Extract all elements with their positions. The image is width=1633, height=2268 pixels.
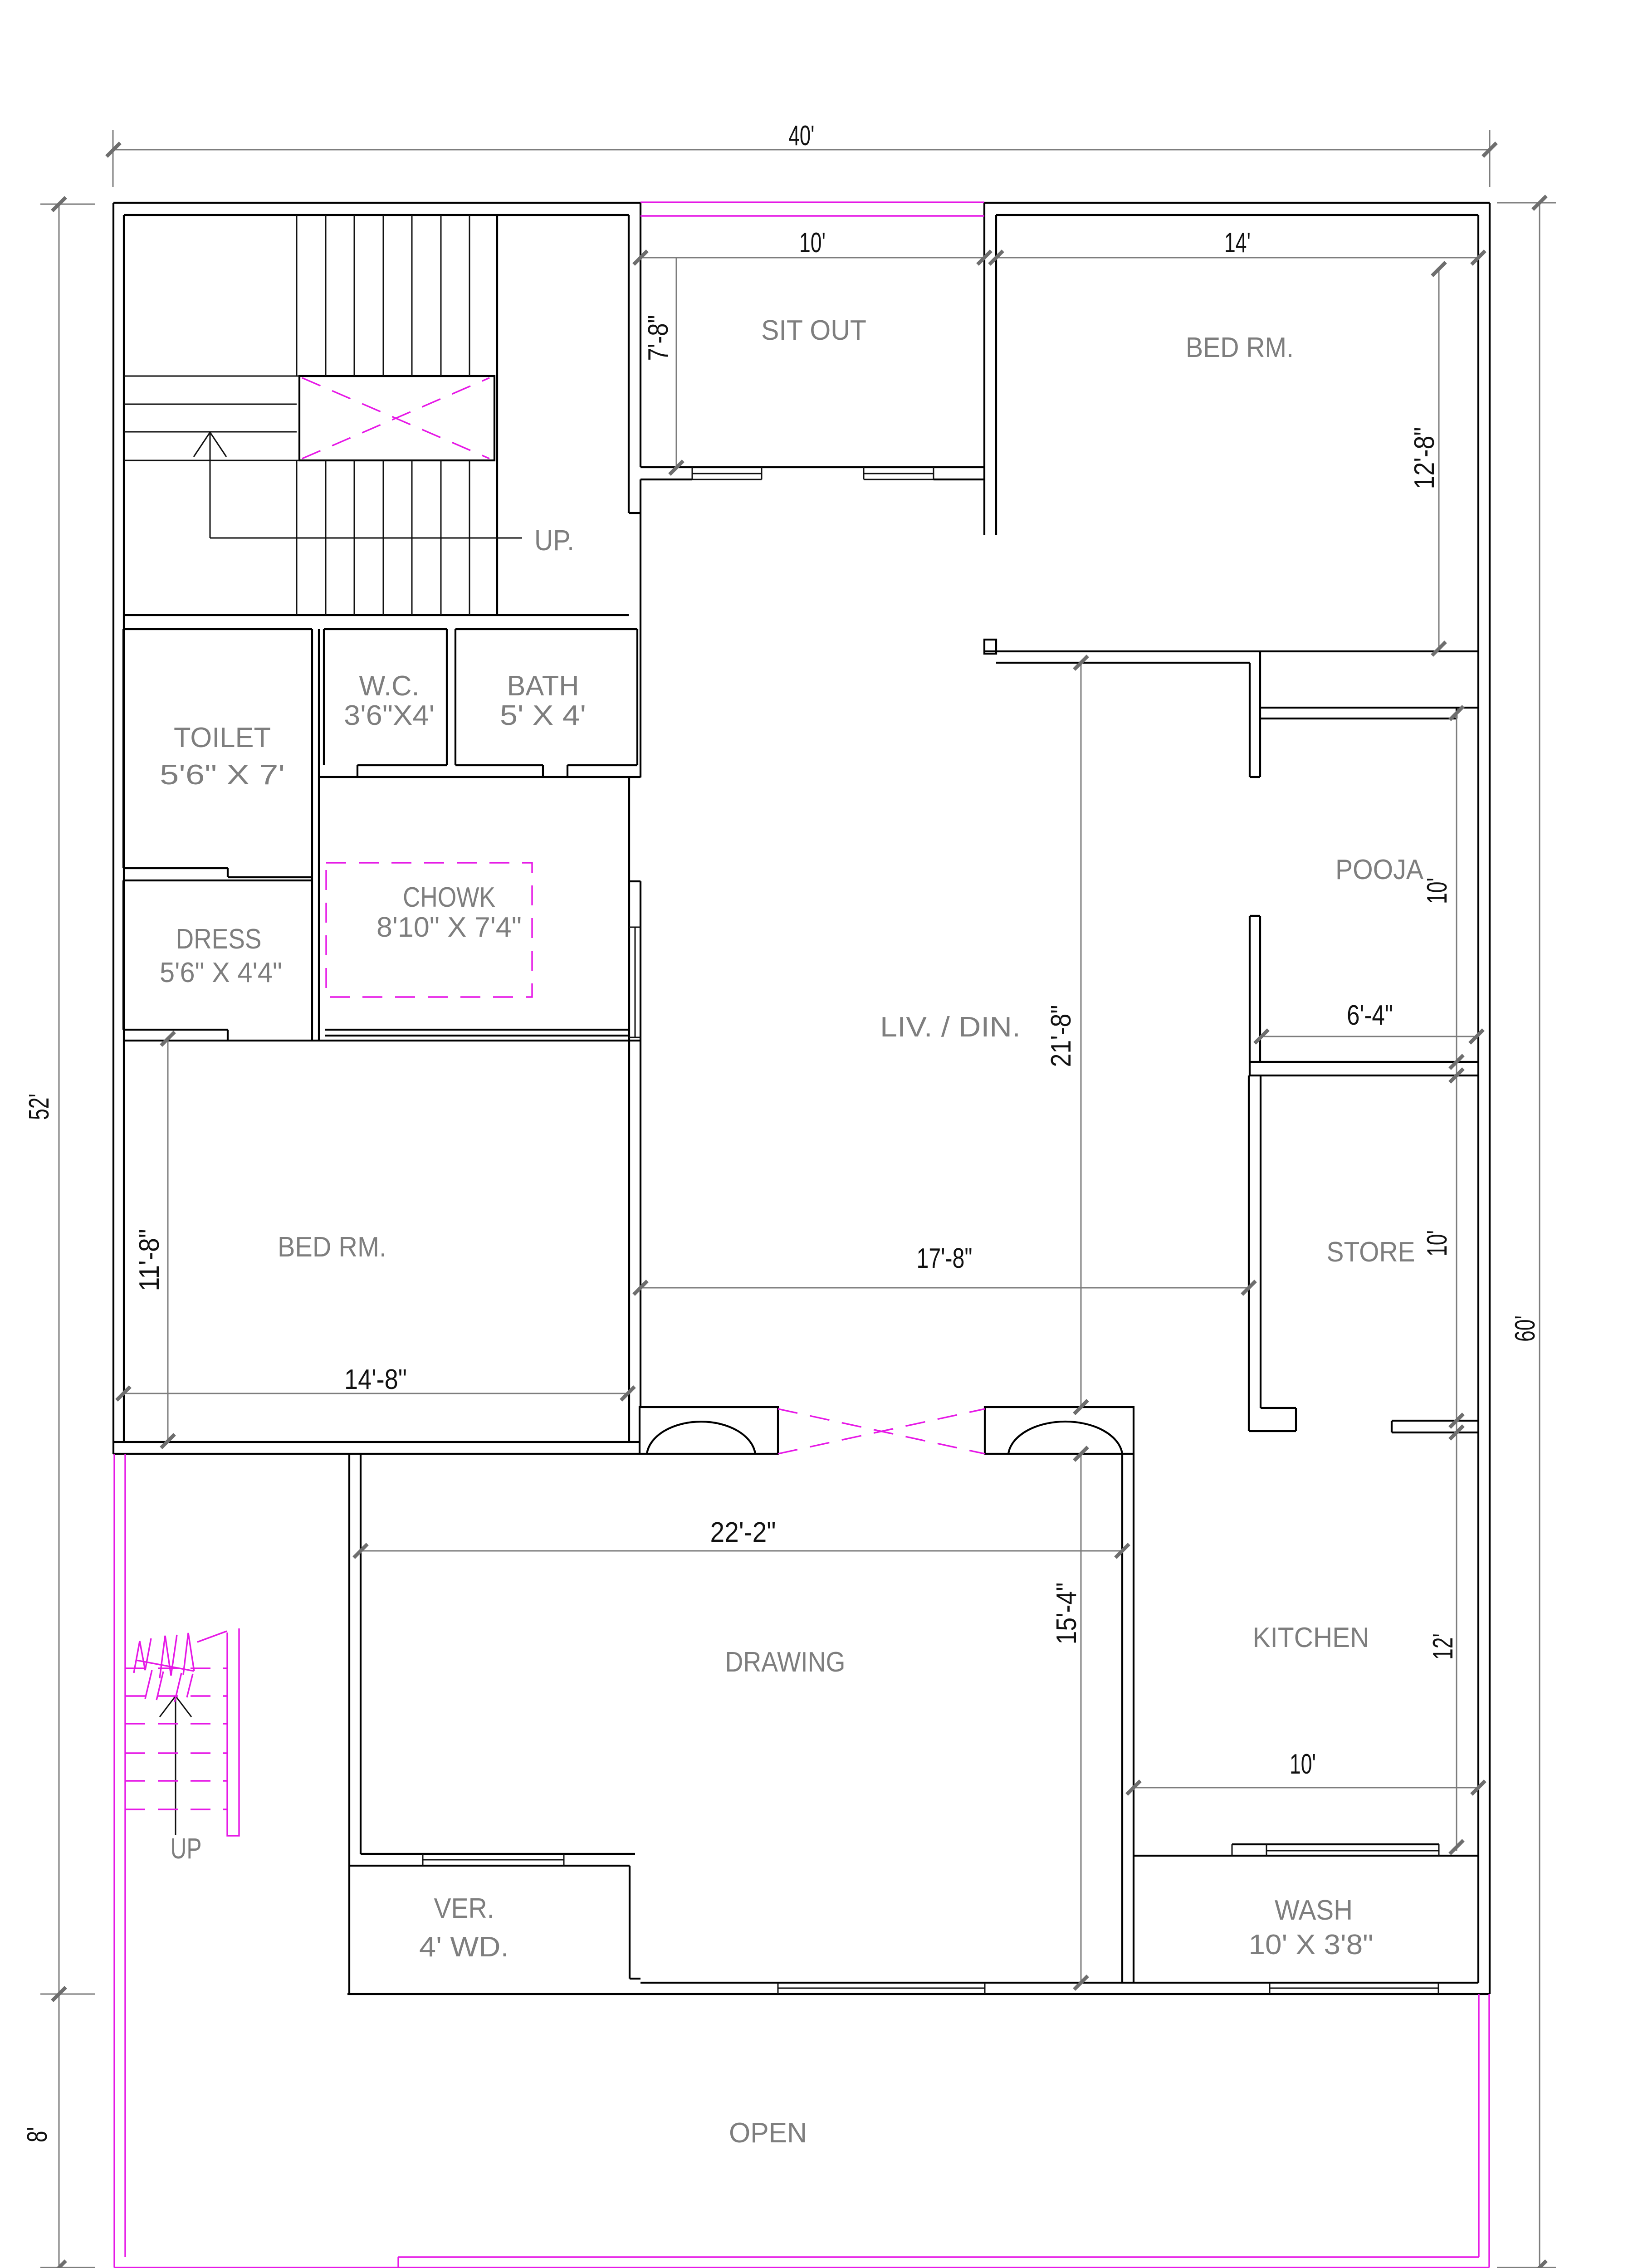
svg-text:8'10" X 7'4": 8'10" X 7'4"	[376, 912, 522, 943]
svg-text:40': 40'	[789, 120, 815, 152]
svg-text:21'-8": 21'-8"	[1046, 1005, 1077, 1067]
svg-text:17'-8": 17'-8"	[917, 1243, 973, 1274]
svg-text:BED RM.: BED RM.	[1186, 332, 1294, 363]
svg-text:DRESS: DRESS	[176, 924, 262, 955]
svg-text:8': 8'	[22, 2127, 53, 2142]
svg-text:10': 10'	[1422, 878, 1453, 904]
svg-text:3'6"X4': 3'6"X4'	[344, 700, 435, 731]
svg-text:UP.: UP.	[534, 524, 574, 557]
svg-text:12': 12'	[1428, 1633, 1459, 1660]
svg-text:4' WD.: 4' WD.	[419, 1931, 509, 1963]
svg-text:7'-8": 7'-8"	[643, 315, 674, 361]
svg-text:UP: UP	[171, 1832, 202, 1865]
svg-text:14'-8": 14'-8"	[344, 1364, 407, 1395]
svg-text:W.C.: W.C.	[359, 670, 420, 702]
svg-text:52': 52'	[24, 1094, 55, 1120]
svg-text:22'-2": 22'-2"	[710, 1517, 776, 1548]
svg-text:POOJA: POOJA	[1335, 854, 1424, 885]
svg-text:10': 10'	[1290, 1749, 1316, 1780]
svg-text:5' X 4': 5' X 4'	[500, 700, 586, 731]
svg-text:11'-8": 11'-8"	[134, 1229, 165, 1291]
svg-text:14': 14'	[1224, 227, 1251, 259]
svg-text:10' X 3'8": 10' X 3'8"	[1249, 1929, 1374, 1960]
svg-text:STORE: STORE	[1327, 1237, 1415, 1268]
svg-text:15'-4": 15'-4"	[1051, 1583, 1082, 1645]
svg-text:WASH: WASH	[1275, 1895, 1353, 1926]
svg-text:LIV. / DIN.: LIV. / DIN.	[880, 1012, 1021, 1043]
svg-text:SIT OUT: SIT OUT	[761, 315, 866, 346]
svg-text:VER.: VER.	[434, 1893, 494, 1924]
svg-text:10': 10'	[1422, 1230, 1453, 1256]
svg-text:TOILET: TOILET	[174, 722, 271, 753]
svg-text:12'-8": 12'-8"	[1409, 427, 1440, 489]
svg-text:BATH: BATH	[507, 670, 579, 702]
svg-text:DRAWING: DRAWING	[725, 1647, 846, 1678]
svg-text:6'-4": 6'-4"	[1347, 1000, 1393, 1031]
svg-text:5'6" X 4'4": 5'6" X 4'4"	[160, 957, 282, 988]
svg-text:10': 10'	[799, 227, 826, 259]
svg-text:CHOWK: CHOWK	[403, 882, 495, 913]
svg-text:60': 60'	[1510, 1315, 1541, 1342]
svg-text:KITCHEN: KITCHEN	[1253, 1622, 1369, 1653]
svg-text:5'6" X 7': 5'6" X 7'	[160, 759, 285, 791]
svg-text:OPEN: OPEN	[729, 2117, 807, 2149]
svg-text:BED RM.: BED RM.	[278, 1232, 386, 1263]
